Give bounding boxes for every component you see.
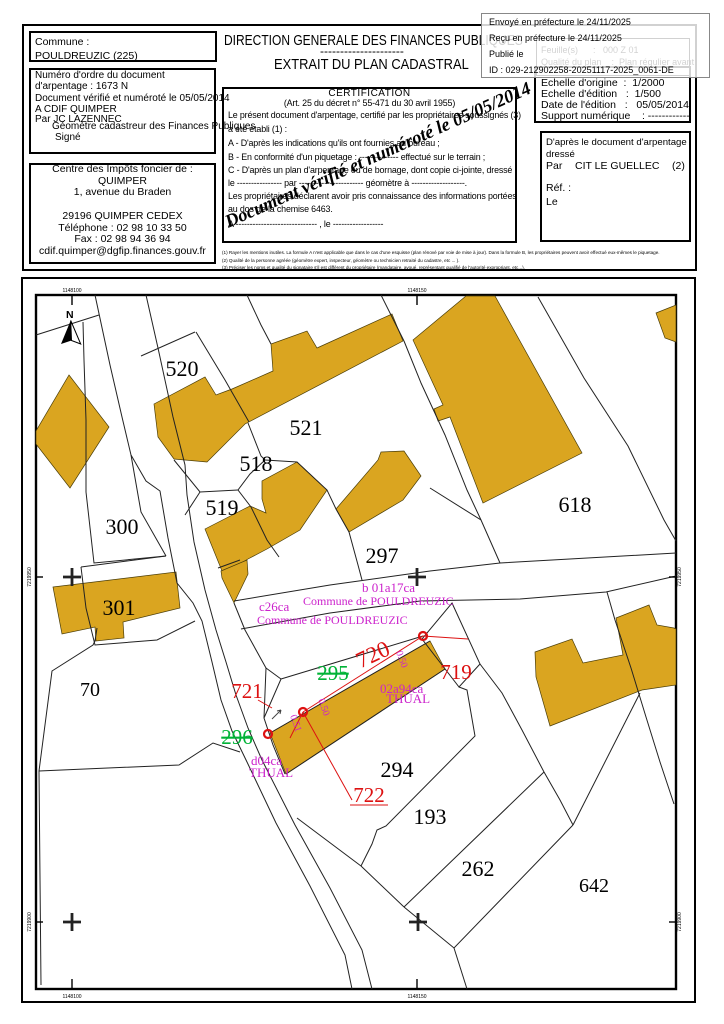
svg-text:Commune de POULDREUZIC: Commune de POULDREUZIC [257, 613, 408, 627]
svg-text:262: 262 [462, 856, 495, 881]
svg-text:b 01a17ca: b 01a17ca [362, 580, 415, 595]
svg-text:721: 721 [231, 679, 263, 703]
svg-text:N: N [66, 309, 74, 321]
svg-text:719: 719 [440, 660, 472, 684]
svg-text:THUAL: THUAL [249, 765, 293, 780]
svg-text:7219950: 7219950 [27, 567, 33, 587]
svg-text:618: 618 [559, 492, 592, 517]
svg-text:Commune de POULDREUZIC: Commune de POULDREUZIC [303, 594, 454, 608]
svg-text:300: 300 [106, 514, 139, 539]
svg-text:193: 193 [414, 804, 447, 829]
svg-text:642: 642 [579, 875, 609, 897]
svg-text:521: 521 [290, 415, 323, 440]
svg-text:1148100: 1148100 [62, 288, 81, 294]
svg-text:520: 520 [166, 356, 199, 381]
svg-text:1148150: 1148150 [407, 994, 426, 1000]
svg-text:295: 295 [317, 661, 349, 685]
svg-text:519: 519 [206, 495, 239, 520]
svg-text:THUAL: THUAL [386, 691, 430, 706]
svg-text:1148100: 1148100 [62, 994, 81, 1000]
svg-text:7219900: 7219900 [27, 912, 33, 932]
svg-text:297: 297 [366, 543, 399, 568]
svg-text:722: 722 [353, 783, 385, 807]
svg-text:7219900: 7219900 [677, 912, 683, 932]
svg-text:70: 70 [80, 679, 100, 701]
svg-text:7219950: 7219950 [677, 567, 683, 587]
svg-text:c26ca: c26ca [259, 599, 290, 614]
svg-text:518: 518 [240, 451, 273, 476]
svg-text:296: 296 [221, 725, 253, 749]
svg-text:294: 294 [381, 757, 414, 782]
svg-text:301: 301 [103, 595, 136, 620]
svg-text:1148150: 1148150 [407, 288, 426, 294]
